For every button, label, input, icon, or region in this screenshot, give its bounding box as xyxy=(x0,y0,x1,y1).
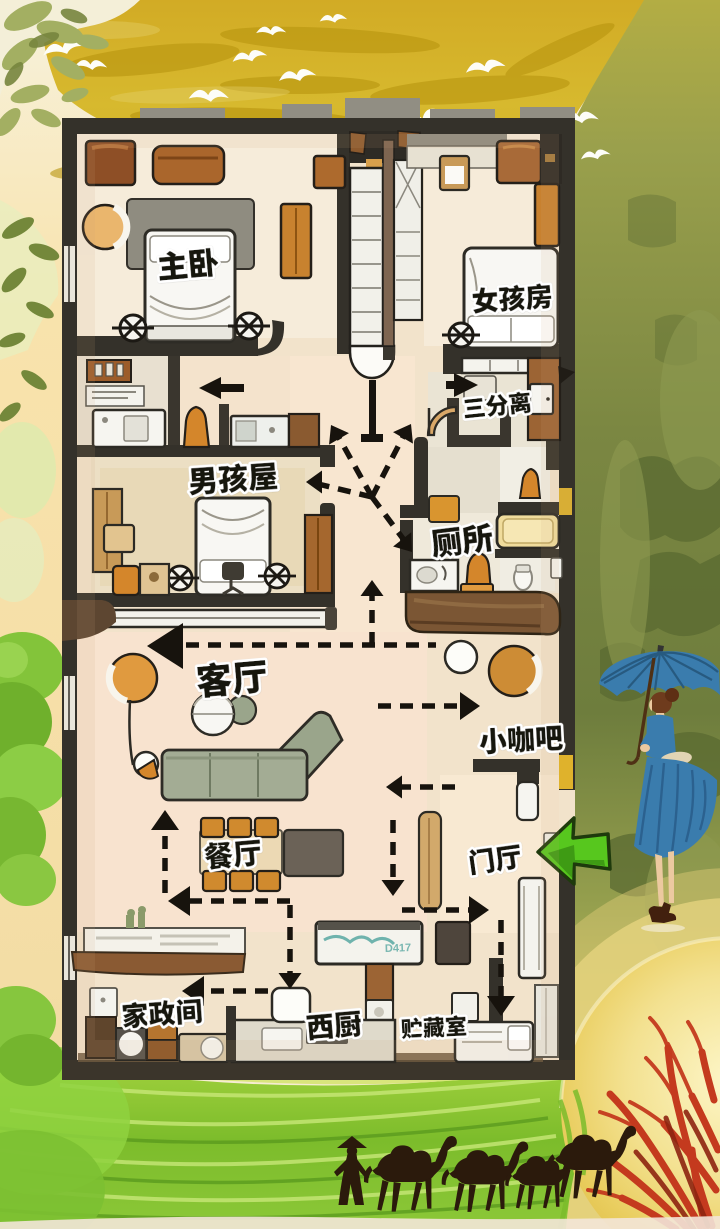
svg-text:D417: D417 xyxy=(385,942,412,955)
